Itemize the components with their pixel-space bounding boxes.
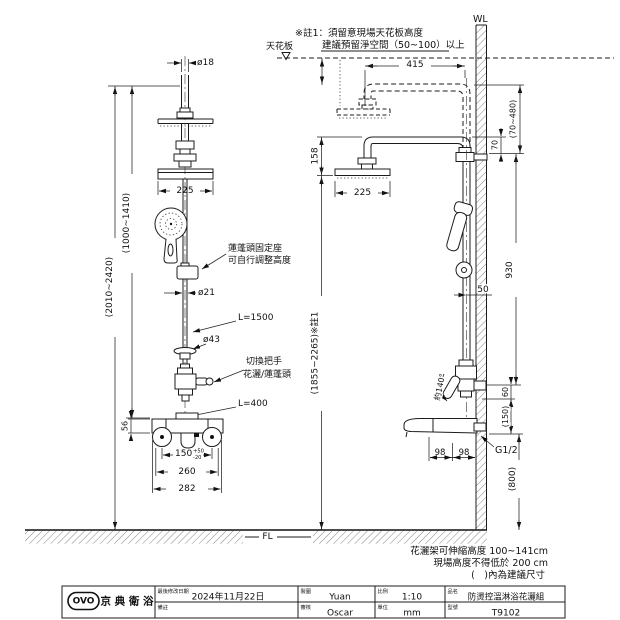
hand-shower-holder xyxy=(177,263,198,279)
swivel-fitting xyxy=(174,141,196,167)
wall-section xyxy=(476,25,487,530)
dim-wall-offset: 50 xyxy=(454,285,492,295)
dim-label-o21: ø21 xyxy=(198,288,215,298)
dim-head-drop: 158 xyxy=(311,137,363,176)
note-holder-line2: 可自行調整高度 xyxy=(228,254,291,266)
field-label-unit: 單位 xyxy=(378,603,388,611)
field-label-checked: 審核 xyxy=(301,603,311,611)
hand-shower-side xyxy=(443,201,474,278)
field-label-drawn: 製圖 xyxy=(301,587,311,595)
field-label-product: 品名 xyxy=(448,587,458,595)
dim-label-o43: ø43 xyxy=(203,335,220,345)
dim-bar-diameter: ø21 xyxy=(164,288,215,298)
field-value-product: 防燙控溫淋浴花灑組 xyxy=(468,592,545,603)
field-value-drawn: Yuan xyxy=(328,593,350,603)
dim-head-height: (1855~2265)※註1 xyxy=(309,176,322,531)
field-value-unit: mm xyxy=(403,609,421,619)
thermostatic-faucet-front xyxy=(152,413,223,448)
dim-label-150: 150 xyxy=(175,449,192,459)
field-label-remarks: 備註 xyxy=(158,603,168,611)
field-label-date: 最後修改日期 xyxy=(158,587,189,595)
brand-logo: OVO xyxy=(68,593,99,610)
note-switch-line1: 切換把手 xyxy=(246,355,282,367)
hand-shower-front xyxy=(155,208,187,263)
field-value-scale: 1:10 xyxy=(402,593,422,603)
dim-spout-drop: (150) xyxy=(489,399,523,434)
dim-label-282: 282 xyxy=(178,484,195,494)
dim-label-50: 50 xyxy=(477,285,489,295)
dim-label-158: 158 xyxy=(311,147,321,164)
dim-arm-reach: 415 xyxy=(365,60,465,106)
dim-faucet-height: 56 xyxy=(121,411,151,441)
dim-label-70: 70 xyxy=(491,140,500,150)
side-view: ※註1：須留意現場天花板高度 建議預留淨空間（50~100）以上 天花板 WL … xyxy=(266,14,614,530)
dim-label-o18: ø18 xyxy=(197,58,214,68)
dim-pipe-diameter: ø18 xyxy=(167,58,214,72)
dim-total-height: (2010~2420) xyxy=(105,86,180,530)
dim-label-56: 56 xyxy=(121,421,130,431)
front-view: ø18 225 xyxy=(105,56,291,530)
note-bottom-line3: ( )內為建議尺寸 xyxy=(471,569,545,581)
rain-shower-head-front xyxy=(158,169,213,179)
dim-label-225-front: 225 xyxy=(176,186,193,196)
dim-label-930: 930 xyxy=(505,261,515,278)
dim-label-98a: 98 xyxy=(435,448,446,458)
dim-label-1855-2265: (1855~2265)※註1 xyxy=(309,312,321,395)
dim-spout-98s: 98 98 xyxy=(429,437,475,461)
note-switch-line2: 花灑/蓮蓬頭 xyxy=(243,368,291,380)
dim-riser-length: 930 xyxy=(482,154,521,385)
dim-label-415: 415 xyxy=(406,60,423,70)
dim-center-distance: 150 +50 -20 xyxy=(162,448,212,461)
note-bottom-line2: 現場高度不得低於 200 cm xyxy=(433,557,548,569)
label-wall-line: WL xyxy=(473,14,488,25)
dim-label-1000-1410: (1000~1410) xyxy=(122,193,132,253)
dim-label-225-side: 225 xyxy=(354,188,371,198)
dim-label-tol-plus: +50 xyxy=(193,449,204,455)
note-ceiling-line2: 建議預留淨空間（50~100）以上 xyxy=(322,39,465,51)
bottom-notes: 花灑架可伸縮高度 100~141cm 現場高度不得低於 200 cm ( )內為… xyxy=(410,545,548,581)
shower-installation-drawing: ø18 225 xyxy=(0,0,620,620)
logo-text: OVO xyxy=(73,597,95,607)
note-holder-line1: 蓮蓬頭固定座 xyxy=(228,242,282,254)
phantom-raised-arm xyxy=(337,84,470,150)
field-value-checked: Oscar xyxy=(327,609,353,619)
field-label-scale: 比例 xyxy=(378,587,388,595)
dim-label-800: (800) xyxy=(508,467,518,491)
dim-label-70-480: (70~480) xyxy=(509,100,518,138)
floor-line: FL xyxy=(25,530,487,544)
title-block: OVO 京 典 衛 浴 最後修改日期 2024年11月22日 製圖 Yuan 比… xyxy=(62,586,565,619)
dim-label-2010-2420: (2010~2420) xyxy=(105,257,115,317)
dim-head-width-side: 225 xyxy=(335,181,390,198)
label-g12: G1/2 xyxy=(495,445,518,456)
label-inlet-length: L=400 xyxy=(238,399,268,409)
bath-spout-side xyxy=(404,419,486,438)
diverter-tee xyxy=(175,364,213,401)
label-hose-length: L=1500 xyxy=(238,313,274,323)
note-bottom-line1: 花灑架可伸縮高度 100~141cm xyxy=(410,545,548,557)
label-floor-line: FL xyxy=(262,532,272,542)
note-ceiling-line1: ※註1：須留意現場天花板高度 xyxy=(295,27,424,39)
field-value-model: T9102 xyxy=(491,609,520,619)
wall-flange xyxy=(174,348,196,360)
technical-drawing-page: ø18 225 xyxy=(0,0,620,620)
label-ceiling: 天花板 xyxy=(266,40,293,52)
dim-head-width-front: 225 xyxy=(158,181,213,196)
shower-arm-side xyxy=(335,137,470,178)
dim-label-260: 260 xyxy=(178,467,195,477)
dim-label-60: 60 xyxy=(501,387,510,397)
dim-label-tol-minus: -20 xyxy=(193,455,201,461)
dim-label-98b: 98 xyxy=(459,448,470,458)
brand-name: 京 典 衛 浴 xyxy=(101,595,154,608)
upper-shower-disc xyxy=(158,119,213,126)
dim-label-150p: (150) xyxy=(501,406,510,428)
dim-bar-height: (1000~1410) xyxy=(122,86,150,418)
field-label-model: 型號 xyxy=(448,603,459,611)
field-value-date: 2024年11月22日 xyxy=(192,591,265,603)
